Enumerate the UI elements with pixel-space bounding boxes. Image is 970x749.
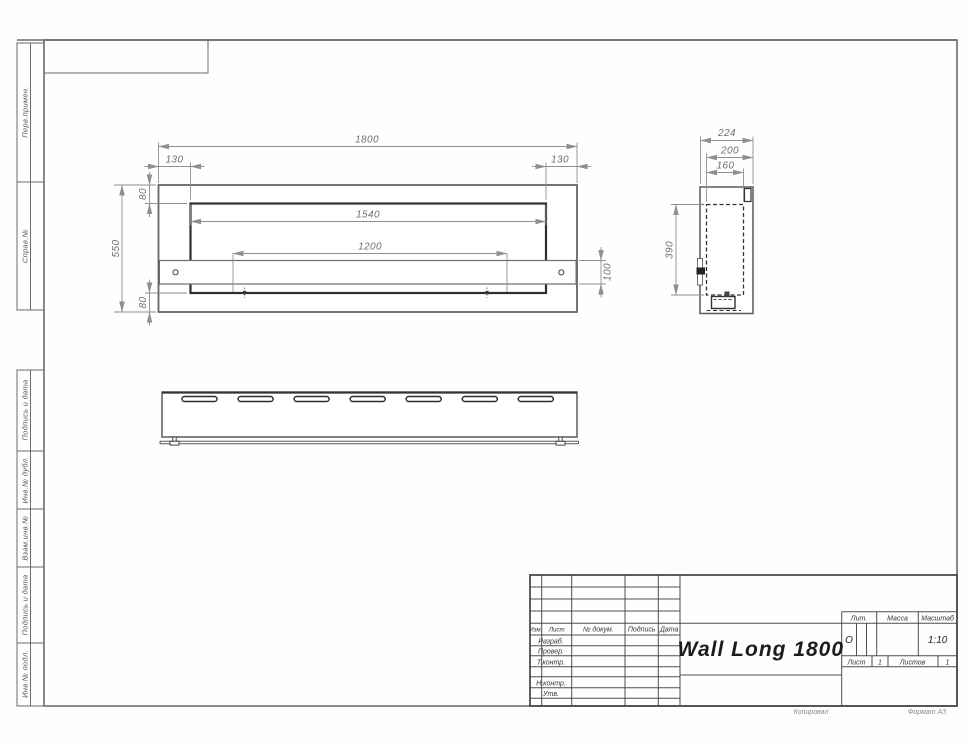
vent-slot-3 <box>294 397 329 402</box>
copied-by-note: Копировал <box>794 709 829 716</box>
vent-slot-7 <box>518 397 553 402</box>
margin-label-podpis-data-2: Подпись и дата <box>21 575 30 636</box>
tb-mass-label: Масса <box>887 615 908 622</box>
footer-notes: Копировал Формат А3 <box>794 709 947 716</box>
dim-body-depth: 200 <box>720 146 739 157</box>
side-bracket-block <box>697 268 706 275</box>
front-view: 1800 130 130 80 1540 1200 550 100 80 <box>111 135 614 326</box>
sheet-frame <box>17 40 957 706</box>
dim-inner-height: 390 <box>665 241 676 259</box>
margin-label-vzam-inv: Взам.инв.№ <box>21 515 30 560</box>
tb-sheet-label: Лист <box>846 659 865 666</box>
side-top-bracket <box>745 189 752 202</box>
margin-label-podpis-data-1: Подпись и дата <box>21 380 30 441</box>
side-burner-box <box>712 297 736 309</box>
tb-lit-label: Лит. <box>850 615 867 622</box>
dim-bracket-span: 1200 <box>358 242 382 253</box>
tb-col-list: Лист <box>548 627 565 634</box>
tb-col-ndokum: № докум. <box>583 626 614 634</box>
margin-label-perv-primen: Перв.примен. <box>21 86 30 137</box>
dim-bracket-height: 100 <box>603 263 614 281</box>
dim-left-offset: 130 <box>166 155 184 166</box>
tb-col-data: Дата <box>659 627 679 634</box>
bottom-vent-slots <box>182 397 553 402</box>
margin-label-inv-dubl: Инв.№ дубл. <box>21 456 30 503</box>
bottom-view <box>160 392 579 445</box>
dim-total-height: 550 <box>111 240 122 258</box>
side-view: 224 200 160 390 <box>665 128 754 314</box>
dim-total-depth: 224 <box>717 128 736 139</box>
tb-col-izm: Изм. <box>529 627 542 634</box>
drawing-sheet: Перв.примен. Справ.№ Подпись и дата Инв.… <box>0 0 970 749</box>
tb-scale-label: Масштаб <box>921 614 955 622</box>
bottom-base-plate <box>160 441 579 443</box>
dim-right-offset: 130 <box>551 155 569 166</box>
format-note: Формат А3 <box>908 709 946 716</box>
dim-total-width: 1800 <box>355 135 379 146</box>
front-hole-left <box>173 270 178 275</box>
tb-row-tkontr: Т.контр. <box>537 659 565 666</box>
dim-bottom-offset: 80 <box>138 297 149 309</box>
vent-slot-4 <box>350 397 385 402</box>
vent-slot-6 <box>462 397 497 402</box>
margin-label-inv-podl: Инв.№ подл. <box>21 650 30 698</box>
front-hole-right <box>559 270 564 275</box>
tb-sheet-value: 1 <box>878 659 882 666</box>
tb-sheets-value: 1 <box>946 659 950 666</box>
dim-top-offset: 80 <box>138 188 149 200</box>
dim-inner-depth: 160 <box>717 161 735 172</box>
tb-row-nkontr: Н.контр. <box>536 680 566 687</box>
bottom-mount-tab-right <box>556 437 565 445</box>
vent-slot-1 <box>182 397 217 402</box>
margin-label-sprav: Справ.№ <box>21 229 30 263</box>
tb-row-utv: Утв. <box>542 691 559 698</box>
vent-slot-5 <box>406 397 441 402</box>
corner-reference-box <box>44 40 208 73</box>
tb-row-razrab: Разраб. <box>538 637 563 645</box>
tb-scale-value: 1:10 <box>928 635 948 646</box>
margin-labels: Перв.примен. Справ.№ Подпись и дата Инв.… <box>21 86 30 698</box>
front-mounting-bracket <box>159 261 576 285</box>
drawing-canvas: Перв.примен. Справ.№ Подпись и дата Инв.… <box>0 0 970 749</box>
tb-col-podpis: Подпись <box>628 626 656 634</box>
document-name: Wall Long 1800 <box>678 638 845 661</box>
vent-slot-2 <box>238 397 273 402</box>
side-burner-nozzle <box>725 292 730 297</box>
tb-lit-value: О <box>845 635 853 646</box>
tb-row-prover: Провер. <box>538 649 564 656</box>
tb-sheets-label: Листов <box>899 659 926 666</box>
bottom-mount-tab-left <box>170 437 179 445</box>
drawing-frame <box>44 40 957 706</box>
dim-opening-width: 1540 <box>356 210 380 221</box>
